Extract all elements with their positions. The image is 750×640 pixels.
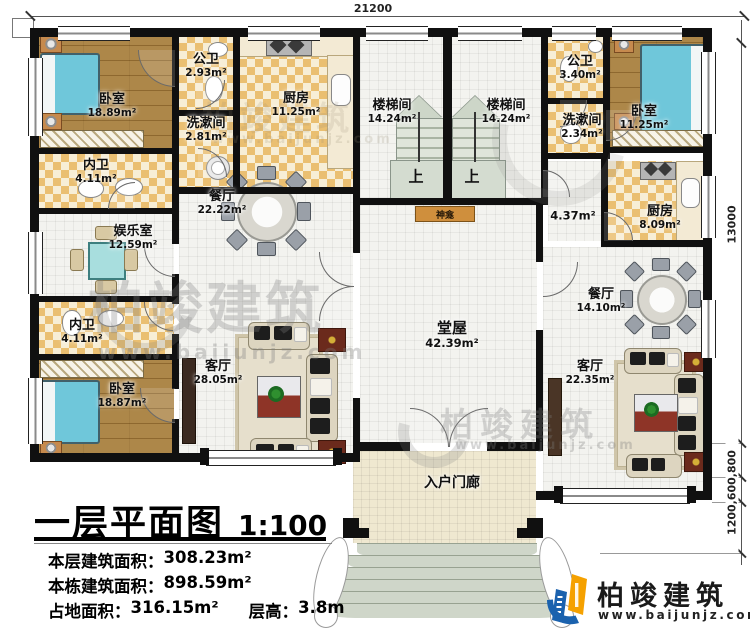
room-area: 2.93m²: [185, 67, 226, 79]
cushion: [274, 326, 292, 340]
label-stair-r: 楼梯间14.24m²: [482, 99, 531, 125]
room-name: 公卫: [193, 53, 219, 68]
label-neiwei-2: 内卫4.11m²: [61, 319, 102, 345]
bay-window-post: [200, 448, 209, 465]
wall: [601, 240, 712, 247]
wall: [541, 153, 610, 159]
area-value: 316.15m²: [131, 598, 219, 622]
window: [701, 176, 716, 238]
dimension-right-value: 13000: [726, 190, 739, 260]
bay-window-left: [206, 450, 336, 466]
area-row-floor: 本层建筑面积： 308.23m²: [48, 548, 252, 572]
label-kitchen-r: 厨房8.09m²: [639, 205, 680, 231]
height-value: 3.8m: [298, 598, 344, 622]
wall: [172, 419, 179, 462]
bay-window-post: [554, 486, 563, 503]
chair: [257, 166, 276, 180]
room-name: 娱乐室: [113, 225, 152, 240]
bay-window-post: [687, 486, 696, 503]
wall: [603, 147, 712, 153]
sink: [681, 178, 700, 208]
room-name: 客厅: [577, 360, 603, 375]
room-area: 14.10m²: [577, 302, 626, 314]
label-game-room: 娱乐室12.59m²: [109, 225, 158, 251]
plant: [268, 386, 284, 402]
cushion: [310, 358, 330, 374]
label-bedroom-tl: 卧室18.89m²: [88, 93, 137, 119]
label-hall: 堂屋42.39m²: [425, 320, 478, 350]
room-name: 餐厅: [209, 190, 235, 205]
tv-cabinet: [548, 378, 562, 456]
kitchen-counter: [327, 55, 355, 169]
window: [366, 26, 428, 41]
label-dining-r: 餐厅14.10m²: [577, 288, 626, 314]
wardrobe: [40, 130, 144, 148]
dimension-top-value: 21200: [340, 2, 406, 15]
wall: [353, 198, 548, 205]
wall: [30, 354, 179, 360]
chair: [297, 202, 311, 221]
porch-post: [343, 528, 369, 538]
bay-window-right: [560, 488, 690, 504]
washbasin: [588, 40, 603, 53]
title-underline: [34, 537, 326, 541]
room-name: 入户门廊: [424, 476, 480, 492]
window: [28, 378, 43, 444]
room-area: 11.25m²: [272, 106, 321, 118]
area-value: 898.59m²: [164, 573, 252, 597]
room-name: 楼梯间: [372, 99, 411, 114]
room-name: 餐厅: [588, 288, 614, 303]
cushion: [651, 458, 665, 471]
dimension-line-right: [741, 20, 742, 565]
cushion: [294, 327, 307, 342]
label-corridor-r: 4.37m²: [550, 210, 595, 223]
cushion: [630, 352, 646, 365]
room-area: 4.11m²: [75, 173, 116, 185]
wall: [30, 208, 179, 214]
chair: [124, 249, 138, 271]
label-xishujian-r: 洗漱间2.34m²: [561, 114, 602, 140]
window: [28, 232, 43, 294]
label-bedroom-bl: 卧室18.87m²: [98, 383, 147, 409]
room-name: 内卫: [69, 319, 95, 334]
room-area: 8.09m²: [639, 219, 680, 231]
room-area: 11.25m²: [620, 119, 669, 131]
wall: [353, 28, 360, 205]
room-area: 42.39m²: [425, 337, 478, 350]
window: [701, 300, 716, 358]
room-name: 洗漱间: [562, 114, 601, 129]
dimension-right-bottom-chain: 1200,600,800: [726, 434, 739, 552]
window: [458, 26, 522, 41]
room-name: 卧室: [99, 93, 125, 108]
area-row-land: 占地面积： 316.15m² 层高： 3.8m: [48, 598, 345, 622]
label-kitchen-l: 厨房11.25m²: [272, 92, 321, 118]
wall: [353, 398, 360, 462]
window: [701, 52, 716, 134]
wall: [353, 442, 410, 451]
room-area: 22.35m²: [566, 374, 615, 386]
wall: [172, 274, 179, 304]
wall: [353, 205, 360, 253]
chair: [257, 242, 276, 256]
room-area: 18.89m²: [88, 107, 137, 119]
chair: [688, 290, 701, 308]
area-label: 占地面积：: [48, 598, 131, 622]
cushion: [649, 352, 665, 365]
floor-plan: 上 上 神龛 柏竣建筑 www.baijunjz.com 柏竣建筑 www.ba…: [0, 0, 750, 640]
chair: [652, 258, 670, 271]
room-name: 厨房: [647, 205, 673, 220]
wall: [536, 330, 543, 451]
cushion: [310, 378, 332, 396]
wall: [443, 28, 452, 205]
room-area: 22.22m²: [198, 204, 247, 216]
cushion: [678, 416, 696, 431]
room-area: 2.34m²: [561, 128, 602, 140]
room-name: 客厅: [205, 360, 231, 375]
wall: [172, 194, 179, 244]
cushion: [310, 418, 330, 434]
room-area: 18.87m²: [98, 397, 147, 409]
room-name: 洗漱间: [186, 117, 225, 132]
stair-direction-arrow: [474, 112, 476, 162]
brand-website: www.baijunjz.com: [598, 608, 750, 622]
chair: [70, 249, 84, 271]
bay-window-post: [333, 448, 342, 465]
area-label: 本栋建筑面积：: [48, 573, 164, 597]
wall: [30, 148, 179, 154]
room-porch: [353, 451, 536, 543]
room-name: 厨房: [283, 92, 309, 107]
cushion: [310, 398, 330, 414]
nightstand: [40, 113, 62, 130]
area-label: 本层建筑面积：: [48, 548, 164, 572]
label-bedroom-tr: 卧室11.25m²: [620, 105, 669, 131]
room-name: 楼梯间: [486, 99, 525, 114]
room-name: 内卫: [83, 159, 109, 174]
label-dining-l: 餐厅22.22m²: [198, 190, 247, 216]
baijun-logo-icon: [543, 570, 593, 630]
cushion: [254, 326, 270, 340]
wall: [172, 334, 179, 389]
room-area: 14.24m²: [368, 113, 417, 125]
cushion: [678, 435, 696, 450]
dining-table-right: [637, 275, 687, 325]
cushion: [667, 353, 679, 367]
bed: [40, 380, 100, 444]
wall: [487, 442, 543, 451]
side-table: [318, 328, 346, 352]
window: [248, 26, 320, 41]
wardrobe: [40, 360, 144, 378]
dimension-line-top: [30, 16, 745, 17]
height-label: 层高：: [249, 598, 299, 622]
area-row-building: 本栋建筑面积： 898.59m²: [48, 573, 252, 597]
room-name: 公卫: [567, 55, 593, 70]
room-area: 3.40m²: [559, 69, 600, 81]
room-area: 4.37m²: [550, 210, 595, 223]
room-name: 堂屋: [437, 320, 467, 337]
cushion: [678, 397, 698, 414]
room-area: 2.81m²: [185, 131, 226, 143]
label-porch: 入户门廊: [424, 476, 480, 492]
title-underline-thin: [34, 543, 332, 544]
room-area: 12.59m²: [109, 239, 158, 251]
label-living-l: 客厅28.05m²: [194, 360, 243, 386]
plant: [644, 402, 659, 417]
cushion: [678, 378, 696, 393]
stair-up-label: 上: [464, 166, 479, 187]
chair: [95, 280, 117, 294]
room-area: 4.11m²: [61, 333, 102, 345]
porch-post: [517, 528, 543, 538]
area-value: 308.23m²: [164, 548, 252, 572]
stair-up-label: 上: [408, 166, 423, 187]
label-neiwei-1: 内卫4.11m²: [75, 159, 116, 185]
room-area: 28.05m²: [194, 374, 243, 386]
shrine-box: 神龛: [415, 206, 475, 222]
sink: [331, 74, 351, 106]
chair: [652, 326, 670, 339]
window: [612, 26, 682, 41]
label-xishujian-l: 洗漱间2.81m²: [185, 117, 226, 143]
shrine-label: 神龛: [436, 208, 454, 221]
spacer: [219, 598, 249, 622]
room-area: 14.24m²: [482, 113, 531, 125]
label-gongwei-l: 公卫2.93m²: [185, 53, 226, 79]
window: [28, 58, 43, 136]
label-living-r: 客厅22.35m²: [566, 360, 615, 386]
wall: [536, 205, 543, 262]
room-name: 卧室: [631, 105, 657, 120]
label-gongwei-r: 公卫3.40m²: [559, 55, 600, 81]
porch-step: [315, 603, 579, 618]
window: [58, 26, 130, 41]
window: [552, 26, 596, 41]
cushion: [632, 458, 648, 471]
extension-line: [600, 553, 742, 554]
room-name: 卧室: [109, 383, 135, 398]
label-stair-l: 楼梯间14.24m²: [368, 99, 417, 125]
stair-direction-arrow: [418, 112, 420, 162]
